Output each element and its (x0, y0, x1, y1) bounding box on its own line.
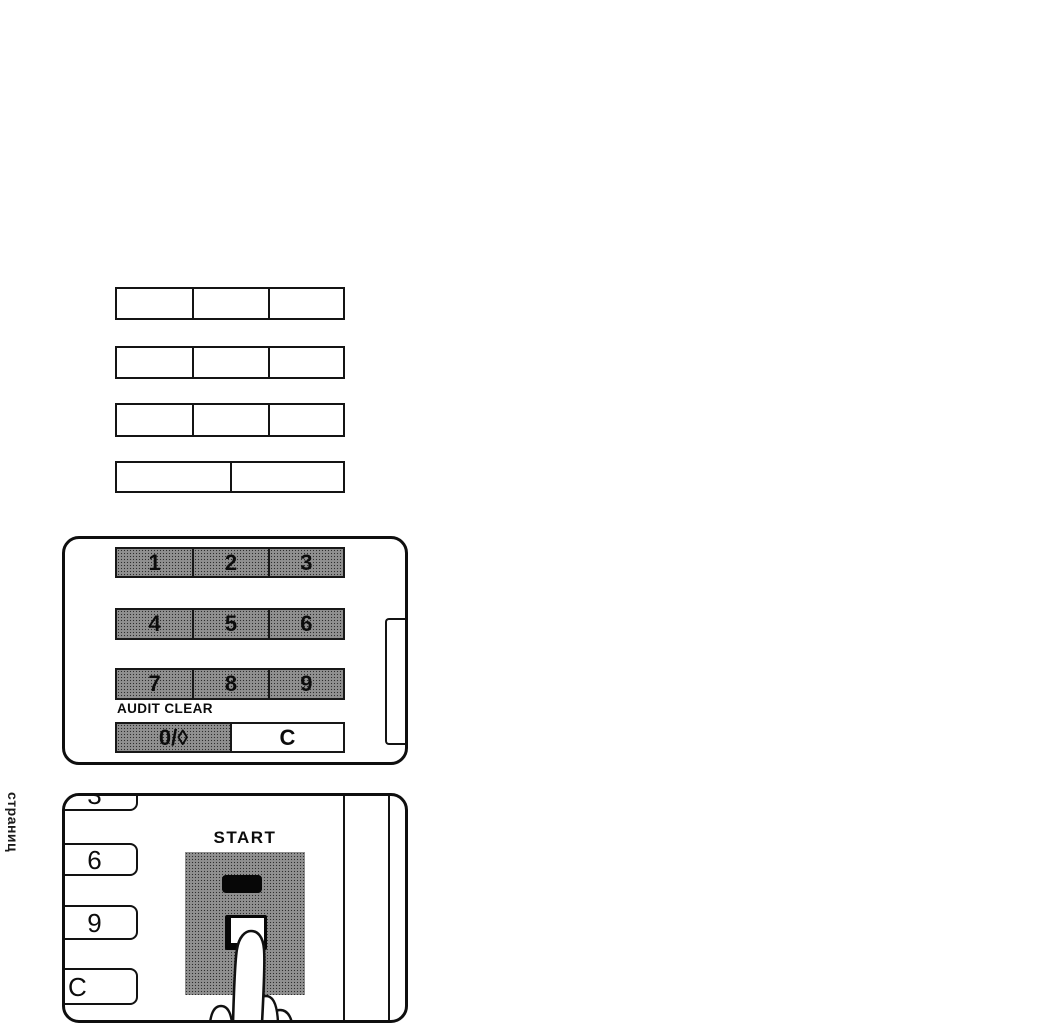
panel-edge-line (388, 796, 390, 1020)
key-9: 9 (268, 670, 343, 698)
table-cell (192, 405, 267, 435)
keypad-illustration-panel: 1 2 3 4 5 6 7 8 9 AUDIT CLEAR 0/◊ C (62, 536, 408, 765)
table-cell (117, 405, 192, 435)
key-5: 5 (192, 610, 267, 638)
blank-table-row-1 (115, 287, 345, 320)
start-label: START (185, 828, 305, 848)
start-button-illustration-panel: 3 6 9 C START (62, 793, 408, 1023)
table-cell (230, 463, 343, 491)
key-6-side: 6 (62, 843, 138, 876)
table-cell (117, 348, 192, 377)
pressing-finger-illustration (185, 926, 305, 1023)
table-cell (268, 405, 343, 435)
table-cell (117, 289, 192, 318)
panel-divider-line (343, 796, 345, 1020)
key-clear-side: C (62, 968, 138, 1005)
table-cell (192, 289, 267, 318)
keypad-row-1: 1 2 3 (115, 547, 345, 578)
blank-table-row-3 (115, 403, 345, 437)
key-1: 1 (117, 549, 192, 576)
table-cell (117, 463, 230, 491)
panel-edge-notch (385, 618, 405, 745)
key-8: 8 (192, 670, 267, 698)
key-3: 3 (268, 549, 343, 576)
table-cell (268, 348, 343, 377)
key-3-partial: 3 (62, 793, 138, 811)
start-indicator-lamp (222, 875, 262, 893)
table-cell (268, 289, 343, 318)
keypad-row-3: 7 8 9 (115, 668, 345, 700)
key-clear: C (230, 724, 343, 751)
blank-table-row-2 (115, 346, 345, 379)
key-6: 6 (268, 610, 343, 638)
table-cell (192, 348, 267, 377)
key-2: 2 (192, 549, 267, 576)
audit-clear-label: AUDIT CLEAR (117, 701, 213, 716)
key-7: 7 (117, 670, 192, 698)
keypad-row-2: 4 5 6 (115, 608, 345, 640)
key-4: 4 (117, 610, 192, 638)
scanned-manual-page: страниц 1 2 3 4 5 6 7 8 9 (0, 0, 1049, 1028)
keypad-row-4: 0/◊ C (115, 722, 345, 753)
key-0-audit-clear: 0/◊ (117, 724, 230, 751)
vertical-margin-label: страниц (5, 792, 21, 852)
blank-table-row-4 (115, 461, 345, 493)
key-9-side: 9 (62, 905, 138, 940)
